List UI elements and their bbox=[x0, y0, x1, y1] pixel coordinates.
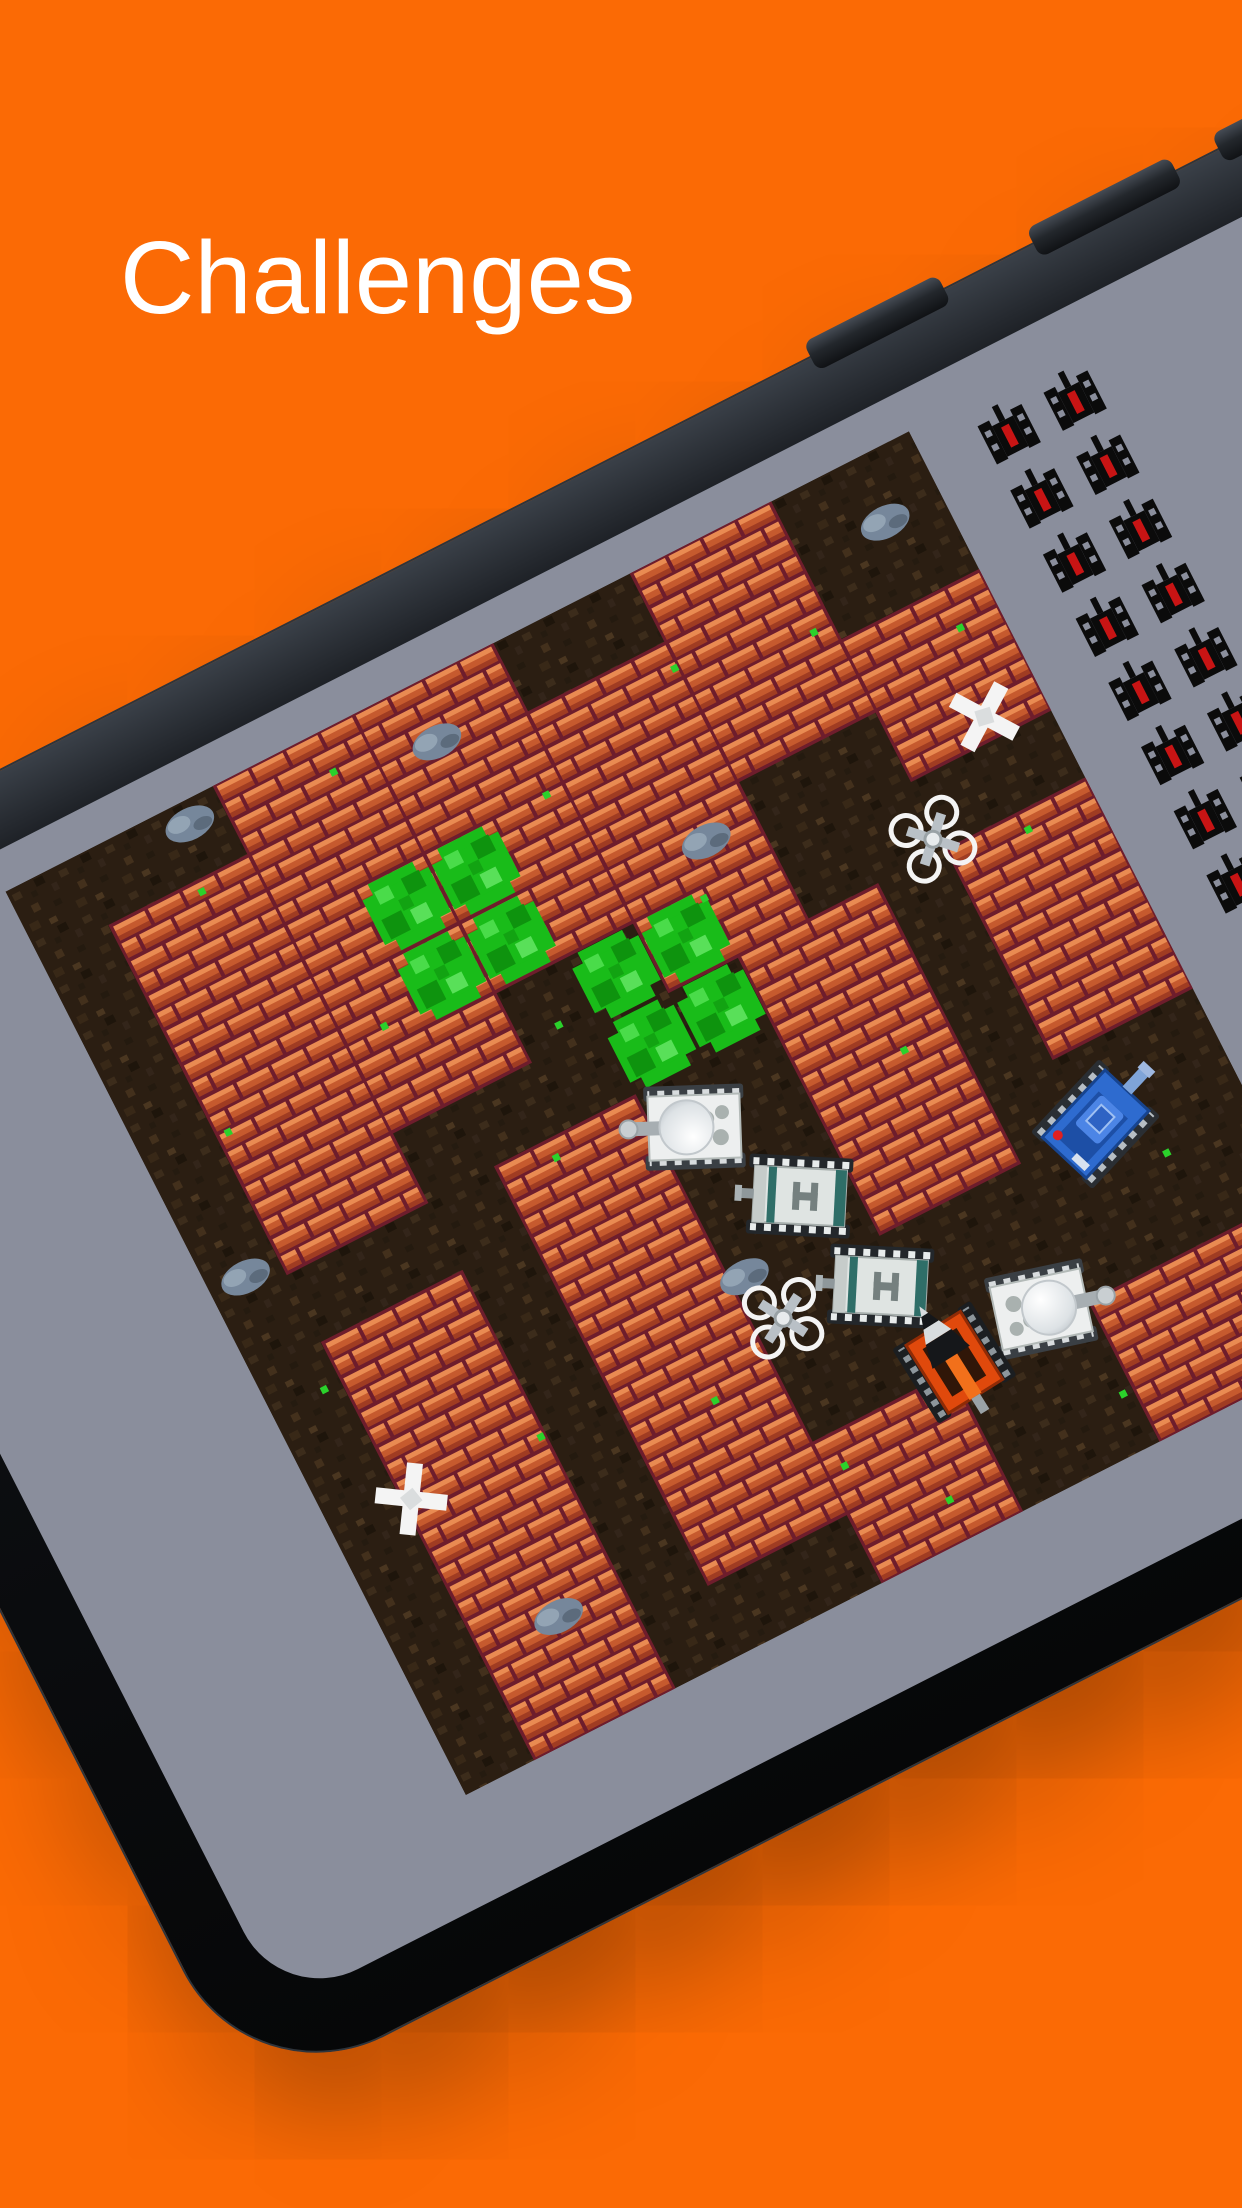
enemy-tank-icon bbox=[1033, 520, 1114, 601]
apc-tank-h bbox=[733, 1153, 854, 1239]
apc-tank-h bbox=[814, 1243, 935, 1329]
enemy-tank-icon bbox=[1131, 713, 1212, 794]
enemy-tank-icon bbox=[1197, 841, 1242, 922]
enemy-tank-icon bbox=[1099, 649, 1180, 730]
page-title: Challenges bbox=[120, 219, 635, 337]
enemy-tank-icon bbox=[1099, 487, 1180, 568]
volume-down-button bbox=[1026, 157, 1183, 258]
enemy-tank-icon bbox=[1001, 456, 1082, 537]
enemy-tank-icon bbox=[968, 392, 1049, 473]
game-field bbox=[5, 431, 1242, 1795]
volume-up-button bbox=[803, 275, 951, 372]
promo-screenshot: Challenges bbox=[0, 0, 1242, 2208]
enemy-tank-icon bbox=[1132, 551, 1213, 632]
quadcopter-drone bbox=[742, 1277, 825, 1360]
enemy-tank-icon bbox=[1165, 615, 1242, 696]
enemy-tank-icon bbox=[1197, 679, 1242, 760]
enemy-tank-icon bbox=[1164, 777, 1242, 858]
enemy-tank-icon bbox=[1066, 584, 1147, 665]
enemy-tank-icon bbox=[1034, 358, 1115, 439]
enemy-tank-icon bbox=[1067, 423, 1148, 504]
power-button bbox=[1211, 99, 1242, 163]
